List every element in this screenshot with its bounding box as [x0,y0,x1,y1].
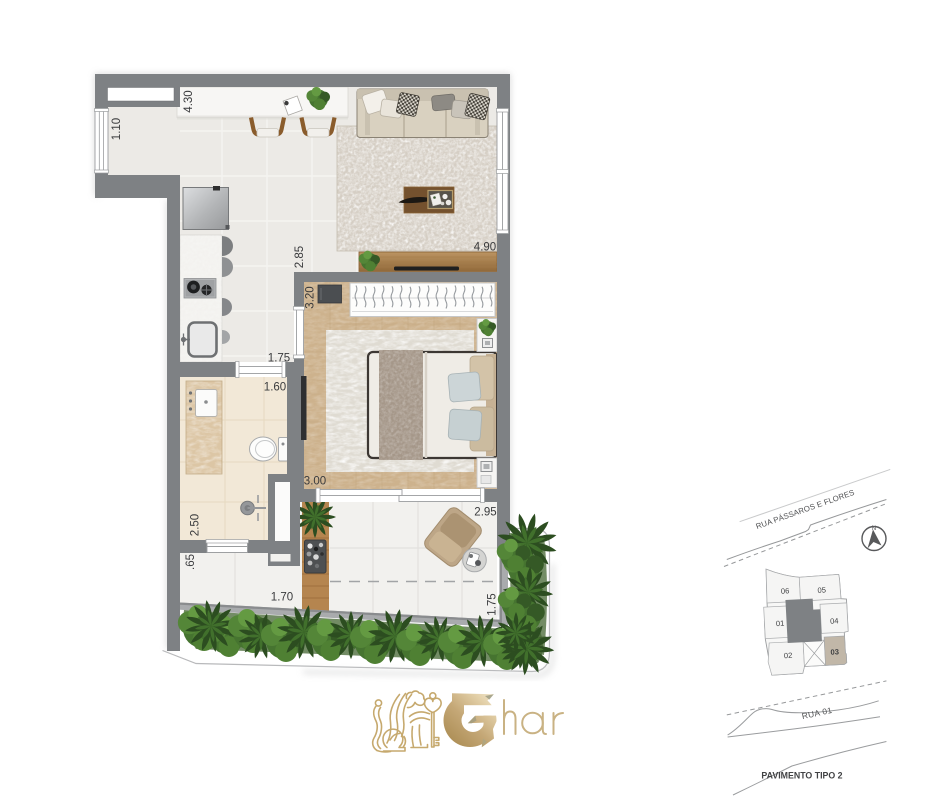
svg-text:2.95: 2.95 [474,507,496,519]
svg-text:.65: .65 [185,554,197,570]
svg-text:RUA 01: RUA 01 [801,705,833,721]
svg-text:03: 03 [830,647,839,656]
svg-text:01: 01 [776,619,785,628]
svg-text:1.10: 1.10 [111,118,123,140]
svg-text:2.50: 2.50 [190,514,202,536]
svg-text:3.00: 3.00 [304,476,326,488]
svg-text:PAVIMENTO TIPO 2: PAVIMENTO TIPO 2 [761,771,842,781]
svg-text:RUA PÁSSAROS E FLORES: RUA PÁSSAROS E FLORES [755,488,856,531]
svg-text:3.20: 3.20 [305,286,317,308]
svg-text:06: 06 [781,586,790,595]
svg-text:02: 02 [784,651,793,660]
svg-text:1.75: 1.75 [268,353,290,365]
svg-text:04: 04 [830,616,839,625]
svg-text:05: 05 [817,585,826,594]
svg-text:4.30: 4.30 [183,90,195,112]
svg-text:N: N [872,525,877,532]
svg-text:2.85: 2.85 [294,246,306,268]
svg-text:1.70: 1.70 [271,592,293,604]
svg-text:4.90: 4.90 [474,242,496,254]
svg-text:1.60: 1.60 [264,382,286,394]
svg-text:1.75: 1.75 [487,593,499,615]
